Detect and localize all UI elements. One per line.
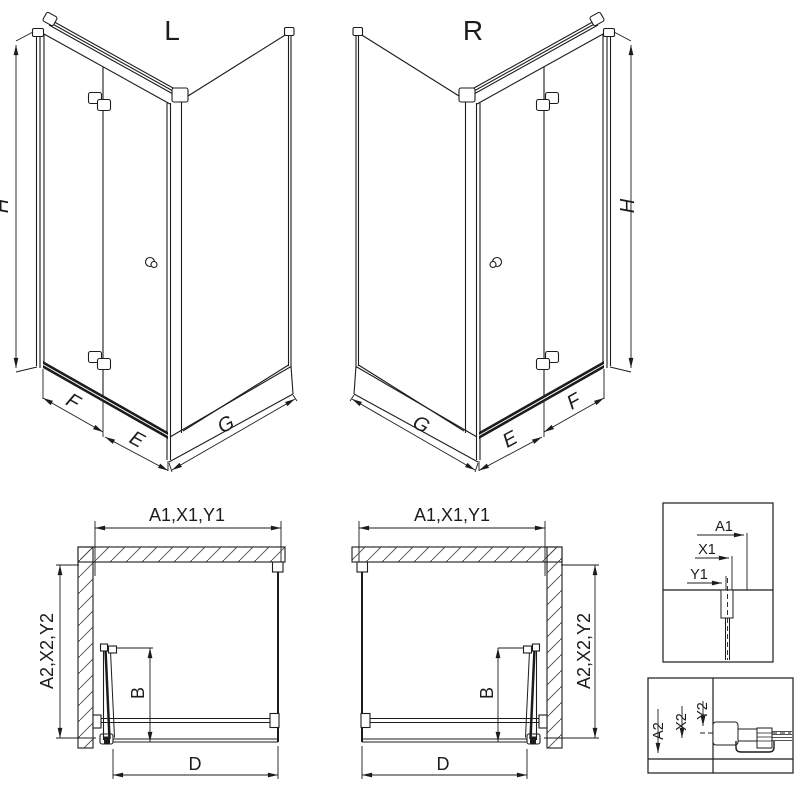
height-dim-label-left: H [0, 198, 13, 213]
plan-l-threshold [113, 739, 278, 742]
plan-r-top-wall [352, 547, 562, 562]
plan-r-door-top-cap-b [524, 646, 532, 653]
detail-box-bottom [648, 678, 793, 773]
variant-label-left: L [164, 15, 180, 46]
plan-l-top-dim-label: A1,X1,Y1 [149, 505, 225, 525]
e-dim-label-right: E [499, 427, 522, 453]
shower-enclosure-diagram: L H F E G R H F E G A1 [0, 0, 800, 800]
variant-label-right: R [463, 15, 483, 46]
height-dim-label-right: H [617, 198, 639, 213]
plan-r-glass-wall-bracket [357, 562, 368, 572]
plan-l-glass-wall-bracket [273, 562, 284, 572]
detail-bottom-clamp-block [757, 728, 772, 748]
plan-l-door-panel-2 [106, 649, 110, 739]
detail-x1-label: X1 [698, 542, 716, 558]
plan-l-top-wall [78, 547, 285, 562]
plan-l-support-bar [97, 719, 271, 723]
plan-r-right-wall [547, 547, 562, 748]
plan-r-door-panel-2 [531, 649, 535, 739]
plan-r-d-dim-label: D [437, 754, 450, 774]
iso-diagram-right: R H F E G [350, 12, 639, 472]
detail-y2-label: Y2 [695, 702, 711, 720]
plan-l-door-top-cap-a [101, 644, 108, 651]
plan-l-left-wall [78, 547, 93, 748]
plan-r-door-top-cap-a [533, 644, 540, 651]
iso-diagram-left: L H F E G [0, 12, 297, 472]
plan-l-bar-glass-bracket [270, 714, 279, 728]
plan-l-bar-wall-bracket [93, 715, 101, 728]
detail-bottom-profile-channel [713, 722, 738, 745]
plan-l-door-top-cap-b [109, 646, 117, 653]
plan-r-b-dim-label: B [477, 687, 497, 699]
plan-l-door-panel-2-edge [111, 651, 115, 738]
plan-r-side-dim-label: A2,X2,Y2 [574, 613, 594, 689]
detail-x2-label: X2 [674, 713, 690, 731]
technical-drawing-page: L H F E G R H F E G A1 [0, 0, 800, 800]
plan-diagram-left [56, 521, 285, 779]
e-dim-label-left: E [126, 427, 149, 453]
plan-r-support-bar [369, 719, 543, 723]
plan-r-door-panel-2-edge [526, 651, 530, 738]
detail-y1-label: Y1 [690, 567, 708, 583]
plan-l-b-dim-label: B [128, 687, 148, 699]
plan-l-side-dim-label: A2,X2,Y2 [37, 613, 57, 689]
detail-a2-label: A2 [651, 722, 667, 740]
detail-bottom-profile-step [738, 729, 757, 741]
plan-l-d-dim-label: D [189, 754, 202, 774]
plan-diagram-right [352, 521, 599, 779]
plan-r-bar-glass-bracket [361, 714, 370, 728]
plan-r-bar-wall-bracket [539, 715, 547, 728]
detail-a1-label: A1 [715, 519, 733, 535]
plan-r-threshold [362, 739, 527, 742]
plan-r-top-dim-label: A1,X1,Y1 [414, 505, 490, 525]
detail-top-profile-channel [721, 590, 733, 618]
